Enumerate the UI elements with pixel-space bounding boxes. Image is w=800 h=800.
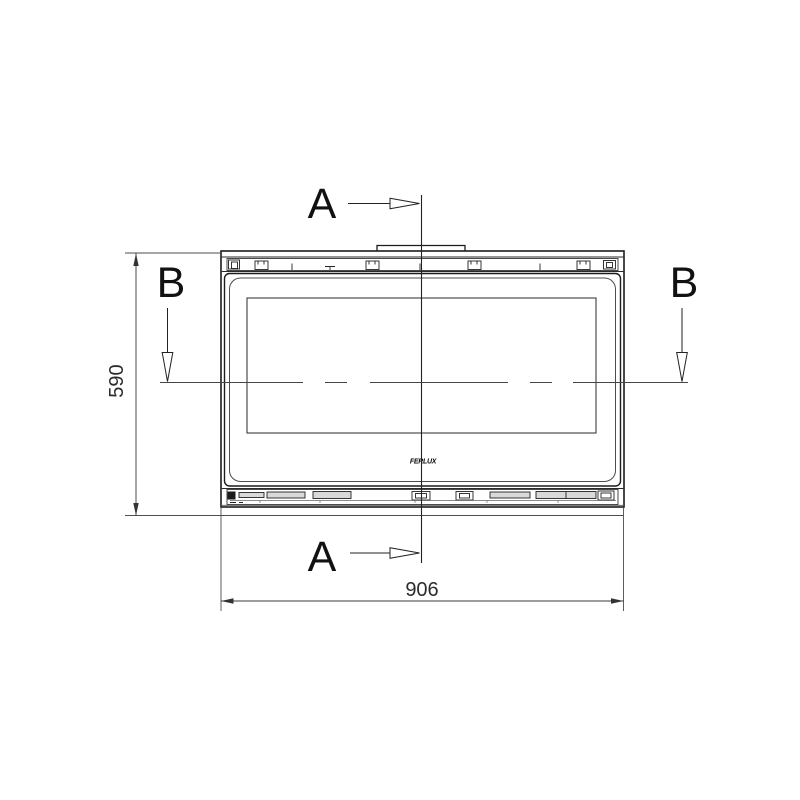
section-b-left-arrowhead xyxy=(162,353,173,382)
height-arrow-down xyxy=(133,503,138,516)
vent-slot xyxy=(490,492,530,498)
section-a-top-label: A xyxy=(308,180,337,228)
drawing-page: FERLUX xyxy=(0,0,800,800)
vent-slot xyxy=(239,493,264,498)
section-b-right-arrowhead xyxy=(677,353,688,382)
section-a-bottom-label: A xyxy=(308,533,337,581)
width-arrow-left xyxy=(221,598,234,603)
section-b-left-label: B xyxy=(157,259,186,307)
section-b-right-label: B xyxy=(670,259,699,307)
width-arrow-right xyxy=(611,598,624,603)
stove-outer-frame xyxy=(221,251,624,507)
vent-slot xyxy=(313,492,351,499)
height-dim-value: 590 xyxy=(106,364,128,397)
stove-body: FERLUX xyxy=(125,246,624,516)
height-arrow-up xyxy=(133,254,138,267)
section-a-bottom-arrowhead xyxy=(390,548,420,559)
section-a-top-arrowhead xyxy=(390,198,420,209)
width-dim-value: 906 xyxy=(405,579,438,601)
brand-logo: FERLUX xyxy=(410,459,438,466)
latch-block xyxy=(228,492,236,500)
technical-drawing-canvas: FERLUX xyxy=(0,0,800,800)
vent-slot xyxy=(267,492,305,498)
dimension-width: 906 xyxy=(221,508,624,611)
